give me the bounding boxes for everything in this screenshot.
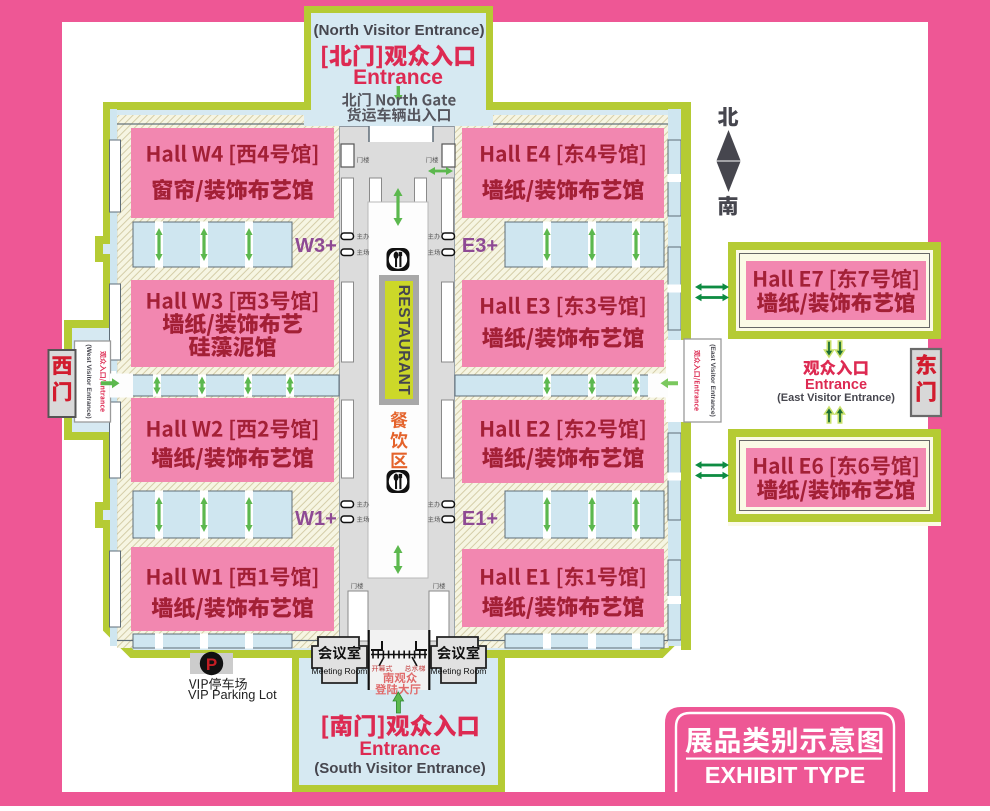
svg-text:EXHIBIT TYPE: EXHIBIT TYPE — [705, 762, 866, 788]
svg-text:Meeting Room: Meeting Room — [431, 666, 487, 676]
svg-text:Entrance: Entrance — [353, 66, 443, 89]
svg-text:P: P — [206, 655, 217, 674]
svg-text:W1+: W1+ — [295, 508, 337, 530]
svg-text:Entrance: Entrance — [805, 377, 867, 393]
svg-text:(West Visitor Entrance): (West Visitor Entrance) — [85, 344, 92, 419]
svg-text:(North Visitor Entrance): (North Visitor Entrance) — [313, 22, 484, 39]
svg-text:RESTAURANT: RESTAURANT — [395, 285, 412, 396]
svg-text:E3+: E3+ — [462, 235, 498, 257]
svg-text:VIP Parking Lot: VIP Parking Lot — [188, 687, 277, 702]
svg-text:(South Visitor Entrance): (South Visitor Entrance) — [314, 760, 485, 777]
svg-text:Meeting Room: Meeting Room — [312, 666, 368, 676]
svg-text:(East Visitor Entrance): (East Visitor Entrance) — [777, 392, 895, 404]
svg-text:(East Visitor Entrance): (East Visitor Entrance) — [709, 344, 716, 417]
svg-text:E1+: E1+ — [462, 508, 498, 530]
svg-text:Entrance: Entrance — [359, 739, 440, 760]
svg-text:W3+: W3+ — [295, 235, 337, 257]
